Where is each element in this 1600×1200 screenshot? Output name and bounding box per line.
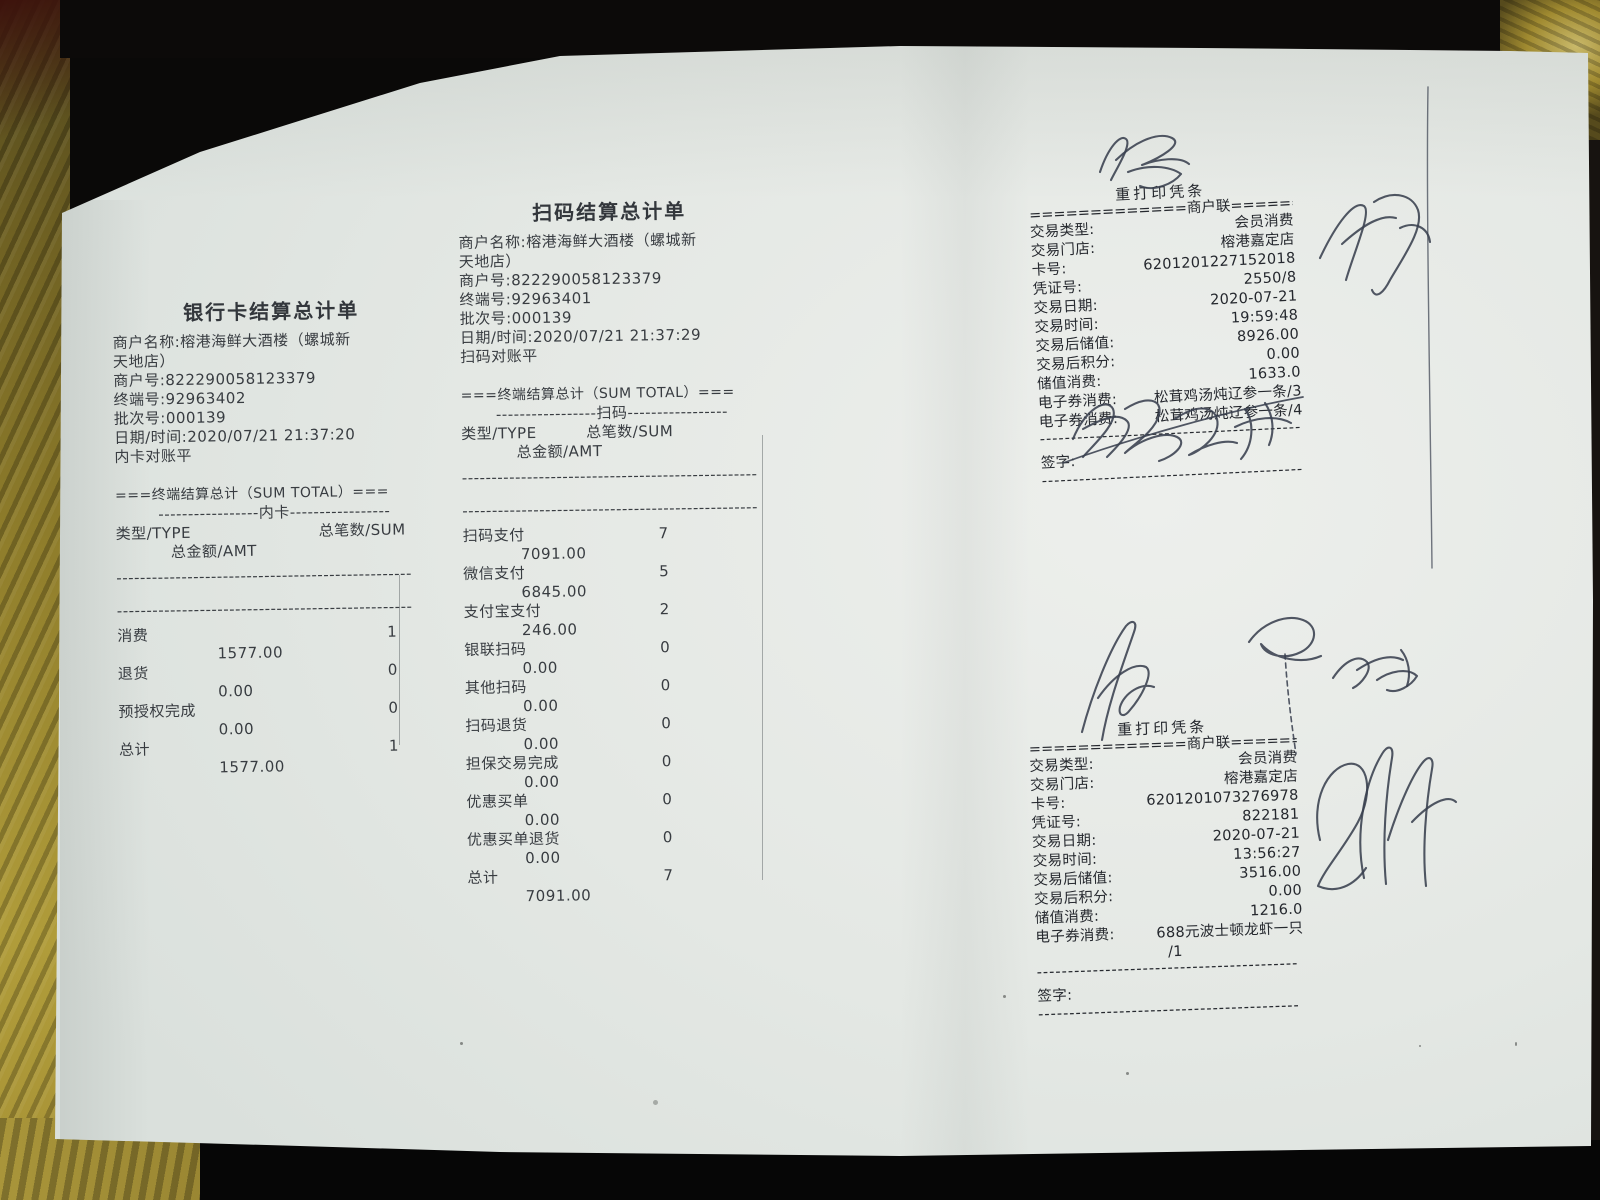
row-value: 榕港嘉定店 (1224, 768, 1299, 790)
row-label: 电子券消费: (1035, 926, 1115, 948)
receipt-photo: 银行卡结算总计单 商户名称:榕港海鲜大酒楼（螺城新 天地店） 商户号:82229… (0, 0, 1600, 1200)
settlement-row: 预授权完成0 0.00 (118, 698, 437, 741)
row-count: 5 (659, 562, 669, 581)
sign-label: 签字: (1037, 988, 1072, 1005)
settlement-row: 消费1 1577.00 (117, 622, 436, 665)
row-count: 0 (661, 714, 671, 733)
row-count: 0 (662, 790, 672, 809)
row-count: 0 (662, 752, 672, 771)
row-label: 凭证号: (1031, 813, 1081, 834)
settlement-row: 退货0 0.00 (118, 660, 437, 703)
row-count: 0 (660, 638, 670, 657)
row-count: 7 (663, 866, 673, 885)
row-amount: 1577.00 (119, 755, 437, 779)
receipt-edge-line (399, 575, 400, 745)
row-type: 退货 (118, 664, 149, 683)
settlement-row: 微信支付5 6845.00 (463, 561, 766, 603)
paper-speck (460, 1042, 463, 1045)
settlement-row: 扫码退货0 0.00 (465, 713, 768, 755)
handwritten-signature-top (1090, 126, 1200, 198)
row-label: 交易门店: (1030, 240, 1095, 262)
row-value: 1216.0 (1250, 901, 1303, 922)
col-sum: 总笔数/SUM (318, 520, 405, 540)
paper-speck (1515, 1042, 1517, 1046)
row-label: 卡号: (1031, 795, 1066, 815)
paper-speck (1419, 1045, 1421, 1047)
row-value: 3516.00 (1239, 863, 1302, 884)
row-type: 优惠买单 (466, 792, 528, 812)
row-amount: 7091.00 (468, 884, 770, 907)
row-count: 7 (658, 524, 668, 543)
pen-crease-line (1418, 85, 1440, 570)
settlement-row-total: 总计1 1577.00 (119, 736, 438, 779)
row-type: 预授权完成 (118, 702, 196, 722)
row-value: 0.00 (1268, 882, 1302, 902)
row-type: 总计 (467, 869, 498, 888)
receipt-title: 银行卡结算总计单 (112, 297, 430, 326)
row-type: 消费 (117, 626, 148, 645)
row-value: 2550/8 (1243, 268, 1297, 289)
row-label: 交易时间: (1033, 851, 1098, 872)
row-count: 2 (660, 600, 670, 619)
settlement-row: 银联扫码0 0.00 (464, 637, 767, 679)
row-count: 0 (388, 699, 398, 718)
paper-crease-shade (900, 46, 1030, 1156)
row-count: 0 (661, 676, 671, 695)
row-label: 储值消费: (1034, 908, 1099, 929)
handwritten-signature-sign-line (1055, 383, 1310, 465)
qr-settlement-receipt: 扫码结算总计单 商户名称:榕港海鲜大酒楼（螺城新 天地店） 商户号:822290… (458, 198, 770, 907)
member-slip-bottom: 重打印凭条 =============商户联============= 交易类型… (1028, 715, 1306, 1022)
settlement-row: 扫码支付7 7091.00 (463, 523, 766, 565)
settlement-row: 担保交易完成0 0.00 (466, 751, 769, 793)
row-count: 0 (663, 828, 673, 847)
row-type: 总计 (119, 740, 150, 759)
receipt-title: 扫码结算总计单 (458, 198, 760, 226)
row-label: 交易门店: (1030, 775, 1095, 796)
row-count: 0 (388, 661, 398, 680)
row-type: 担保交易完成 (466, 754, 559, 774)
bank-card-settlement-receipt: 银行卡结算总计单 商户名称:榕港海鲜大酒楼（螺城新 天地店） 商户号:82229… (112, 297, 437, 779)
handwritten-signature-bottom-3 (1325, 638, 1425, 696)
row-label: 交易后积分: (1034, 888, 1114, 910)
col-type: 类型/TYPE (116, 524, 192, 544)
row-count: 1 (387, 623, 397, 642)
row-type: 支付宝支付 (464, 602, 542, 622)
col-sum: 总笔数/SUM (586, 422, 673, 442)
row-label: 交易类型: (1029, 756, 1094, 777)
row-value: 13:56:27 (1233, 844, 1301, 865)
row-label: 卡号: (1031, 260, 1067, 281)
row-type: 扫码退货 (465, 716, 527, 736)
settlement-row: 优惠买单退货0 0.00 (467, 827, 770, 869)
settlement-row: 其他扫码0 0.00 (465, 675, 768, 717)
paper-speck (1003, 995, 1006, 998)
row-type: 微信支付 (463, 564, 525, 584)
handwritten-signature-flourish (1300, 728, 1460, 906)
row-count: 1 (389, 737, 399, 756)
row-type: 其他扫码 (465, 678, 527, 698)
paper-speck (653, 1100, 658, 1105)
row-type: 银联扫码 (464, 640, 526, 660)
row-value: 0.00 (1266, 344, 1300, 365)
row-value: 822181 (1242, 806, 1300, 827)
row-label: 交易日期: (1032, 832, 1097, 853)
settlement-row: 支付宝支付2 246.00 (464, 599, 767, 641)
row-type: 扫码支付 (463, 526, 525, 546)
row-value: 1633.0 (1248, 363, 1301, 384)
row-label: 交易后积分: (1036, 353, 1116, 376)
paper-speck (1126, 1072, 1129, 1075)
settlement-row: 优惠买单0 0.00 (466, 789, 769, 831)
row-label: 凭证号: (1032, 279, 1082, 300)
receipt-edge-line (762, 435, 763, 880)
col-type: 类型/TYPE (461, 424, 537, 444)
row-type: 优惠买单退货 (467, 830, 560, 850)
settlement-row-total: 总计7 7091.00 (467, 865, 770, 907)
paper-sheet: 银行卡结算总计单 商户名称:榕港海鲜大酒楼（螺城新 天地店） 商户号:82229… (0, 0, 1600, 1200)
handwritten-signature-bottom-1 (1058, 612, 1160, 752)
